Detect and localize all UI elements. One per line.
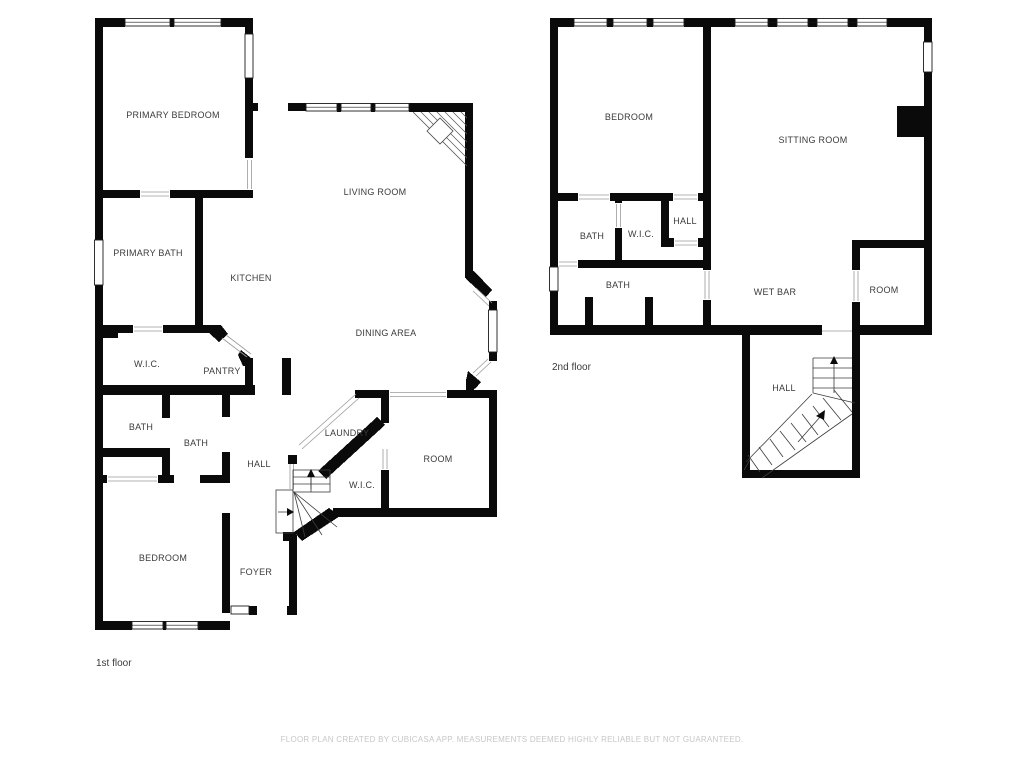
room-label-bath-4: BATH <box>606 280 630 290</box>
room-label-room-1: ROOM <box>424 454 453 464</box>
room-label-sitting-room: SITTING ROOM <box>779 135 848 145</box>
room-label-primary-bedroom: PRIMARY BEDROOM <box>126 110 219 120</box>
second-floor-windows <box>550 19 933 292</box>
floor-caption-2nd: 2nd floor <box>552 362 591 373</box>
floor-plan-page: PRIMARY BEDROOM LIVING ROOM PRIMARY BATH… <box>0 0 1024 768</box>
room-label-wic-2: W.I.C. <box>349 480 375 490</box>
room-label-bath-2: BATH <box>184 438 208 448</box>
room-label-dining-area: DINING AREA <box>356 328 417 338</box>
second-floor-walls <box>550 18 932 478</box>
room-label-bedroom-1: BEDROOM <box>139 553 187 563</box>
room-label-wic-3: W.I.C. <box>628 229 654 239</box>
second-floor-plan <box>550 18 933 478</box>
room-label-bath-3: BATH <box>580 231 604 241</box>
room-label-pantry: PANTRY <box>203 366 240 376</box>
room-label-hall-3: HALL <box>772 383 796 393</box>
footer-disclaimer: FLOOR PLAN CREATED BY CUBICASA APP. MEAS… <box>0 735 1024 744</box>
room-label-hall-1: HALL <box>247 459 271 469</box>
room-label-foyer: FOYER <box>240 567 272 577</box>
room-label-bath-1: BATH <box>129 422 153 432</box>
room-label-primary-bath: PRIMARY BATH <box>113 248 183 258</box>
room-label-wic-1: W.I.C. <box>134 359 160 369</box>
room-label-kitchen: KITCHEN <box>230 273 271 283</box>
first-floor-doors <box>108 160 492 489</box>
room-label-bedroom-2: BEDROOM <box>605 112 653 122</box>
room-label-hall-2: HALL <box>673 216 697 226</box>
room-label-wet-bar: WET BAR <box>754 287 797 297</box>
room-label-living-room: LIVING ROOM <box>344 187 407 197</box>
floor-caption-1st: 1st floor <box>96 658 132 669</box>
room-label-laundry: LAUNDRY <box>325 428 370 438</box>
stairs-icon <box>744 356 855 478</box>
corner-fireplace-icon <box>405 104 520 171</box>
room-label-room-2: ROOM <box>870 285 899 295</box>
